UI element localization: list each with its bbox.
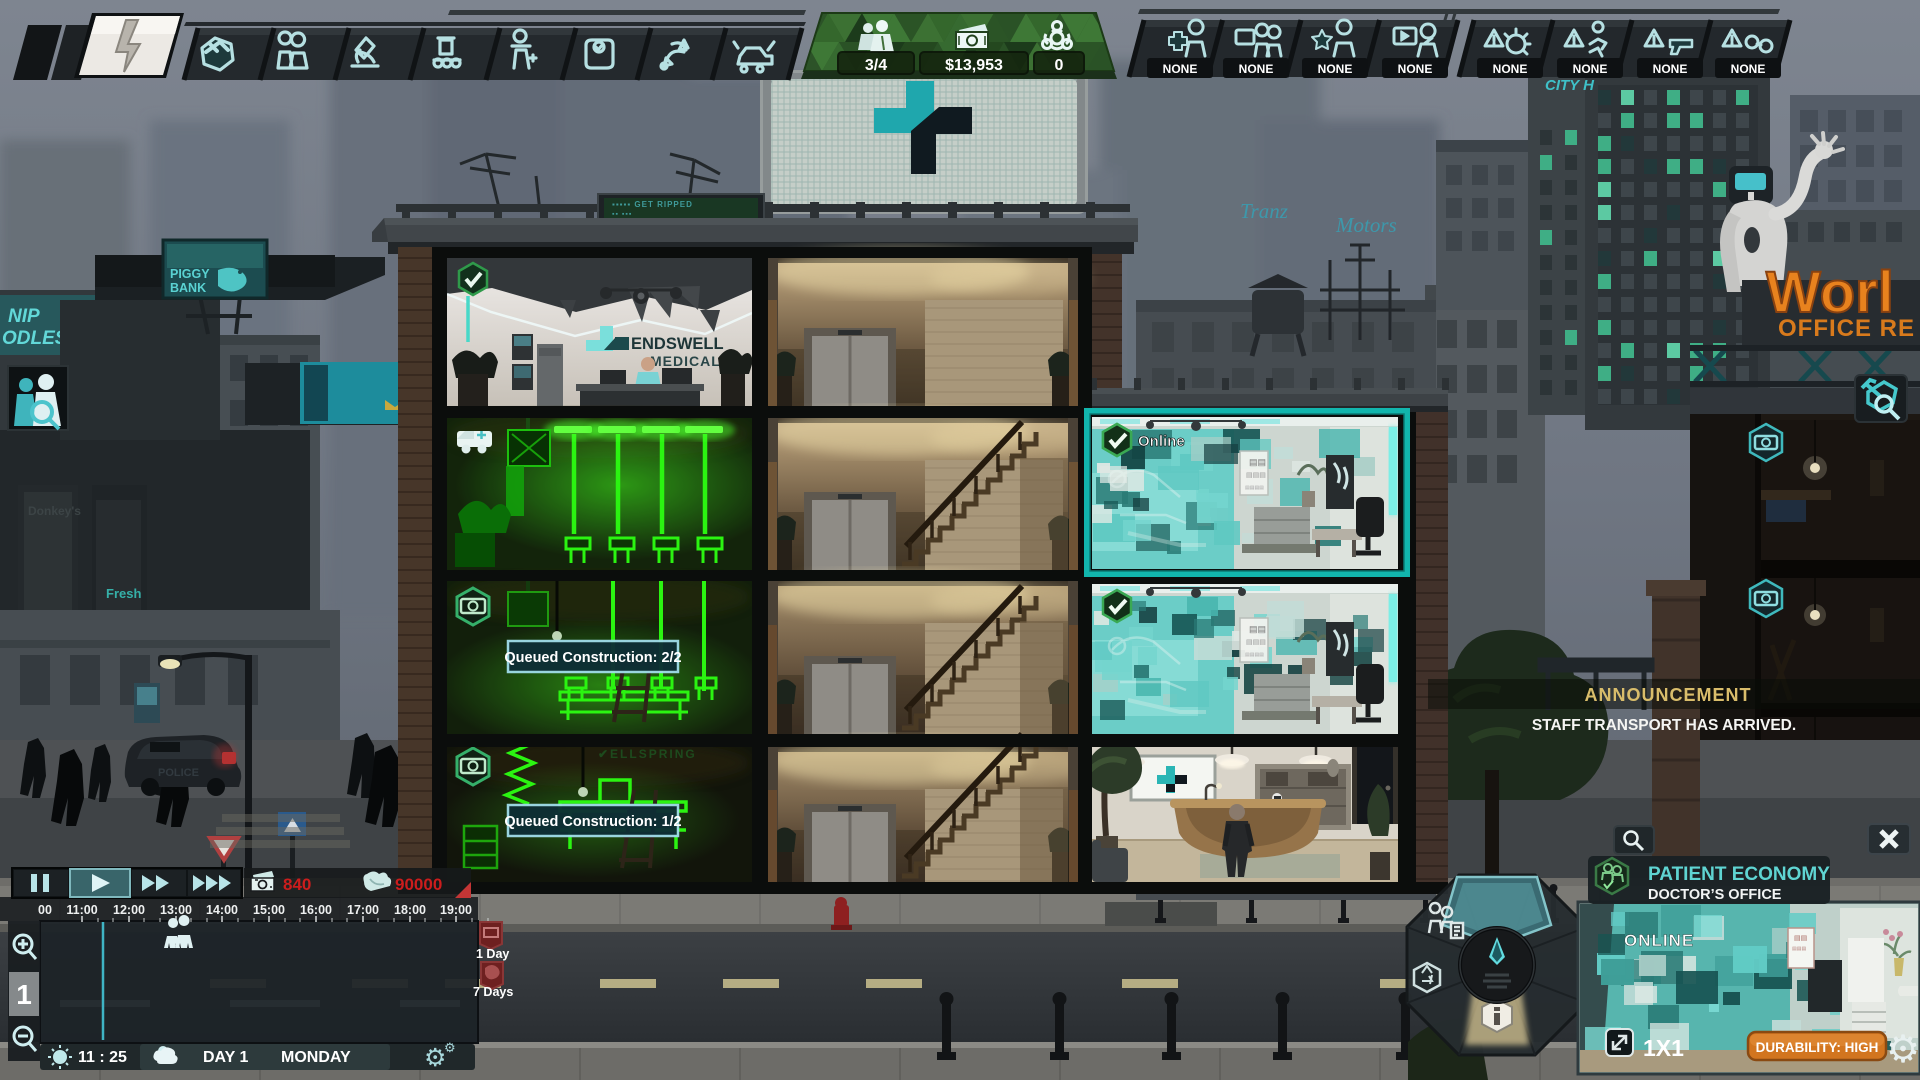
svg-text:Motors: Motors: [1335, 213, 1397, 237]
svg-text:NONE: NONE: [1493, 62, 1528, 76]
svg-text:NONE: NONE: [1163, 62, 1198, 76]
svg-text:12:00: 12:00: [113, 903, 145, 917]
svg-text:DURABILITY: HIGH: DURABILITY: HIGH: [1756, 1040, 1879, 1055]
svg-text:▤▤▤: ▤▤▤: [1246, 639, 1266, 646]
svg-text:NONE: NONE: [1653, 62, 1688, 76]
svg-text:11 : 25: 11 : 25: [78, 1049, 127, 1066]
svg-text:14:00: 14:00: [206, 903, 238, 917]
svg-text:15:00: 15:00: [253, 903, 285, 917]
svg-text:Donkey's: Donkey's: [28, 504, 81, 518]
svg-text:Tranz: Tranz: [1240, 199, 1288, 223]
svg-text:Fresh: Fresh: [106, 586, 141, 601]
svg-text:DAY 1: DAY 1: [203, 1049, 248, 1066]
svg-text:ODLES: ODLES: [2, 328, 68, 349]
svg-text:POLICE: POLICE: [158, 767, 199, 779]
svg-text:NIP: NIP: [8, 306, 40, 327]
svg-text:1: 1: [16, 979, 32, 1010]
svg-text:1X1: 1X1: [1643, 1035, 1684, 1061]
svg-text:1 Day: 1 Day: [476, 947, 509, 961]
svg-text:Online: Online: [1138, 433, 1185, 450]
svg-text:ONLINE: ONLINE: [1624, 931, 1694, 950]
svg-text:▪▪▪▪▪ GET RIPPED: ▪▪▪▪▪ GET RIPPED: [612, 200, 693, 209]
svg-text:✔ELLSPRING: ✔ELLSPRING: [598, 747, 697, 761]
svg-text:13:00: 13:00: [160, 903, 192, 917]
svg-text:NONE: NONE: [1573, 62, 1608, 76]
svg-text:▤▤▤▤: ▤▤▤▤: [1245, 485, 1264, 491]
svg-text:11:00: 11:00: [66, 903, 97, 917]
svg-text:MEDICAL: MEDICAL: [650, 353, 721, 369]
svg-text:NONE: NONE: [1731, 62, 1766, 76]
svg-text:17:00: 17:00: [347, 903, 379, 917]
svg-text:00: 00: [38, 903, 52, 917]
svg-text:STAFF TRANSPORT HAS ARRIVED.: STAFF TRANSPORT HAS ARRIVED.: [1532, 717, 1796, 734]
svg-text:19:00: 19:00: [440, 903, 472, 917]
svg-text:▤▤▤: ▤▤▤: [1246, 472, 1266, 479]
svg-text:18:00: 18:00: [394, 903, 426, 917]
svg-text:DOCTOR’S OFFICE: DOCTOR’S OFFICE: [1648, 887, 1782, 903]
svg-text:PIGGY: PIGGY: [170, 267, 210, 281]
svg-text:OFFICE RE: OFFICE RE: [1778, 315, 1915, 342]
svg-text:⚙: ⚙: [1886, 1029, 1920, 1071]
svg-text:▤▤▤▤: ▤▤▤▤: [1245, 652, 1264, 658]
svg-text:ANNOUNCEMENT: ANNOUNCEMENT: [1585, 685, 1752, 705]
svg-text:840: 840: [283, 875, 311, 894]
svg-text:▪▪ ▪▪▪: ▪▪ ▪▪▪: [612, 211, 632, 218]
svg-text:▤▤▤: ▤▤▤: [1792, 946, 1806, 952]
svg-text:▤▤: ▤▤: [1249, 624, 1266, 634]
svg-text:Queued Construction: 1/2: Queued Construction: 1/2: [504, 814, 681, 830]
svg-text:▤▤: ▤▤: [1794, 935, 1807, 942]
svg-text:NONE: NONE: [1318, 62, 1353, 76]
svg-text:CITY H: CITY H: [1545, 77, 1595, 94]
svg-text:ENDSWELL: ENDSWELL: [631, 335, 724, 353]
svg-text:3/4: 3/4: [865, 57, 887, 74]
svg-text:Queued Construction: 2/2: Queued Construction: 2/2: [504, 650, 681, 666]
svg-text:PATIENT ECONOMY: PATIENT ECONOMY: [1648, 864, 1830, 885]
svg-text:▤▤: ▤▤: [1249, 457, 1266, 467]
svg-text:NONE: NONE: [1239, 62, 1274, 76]
svg-text:⚙: ⚙: [444, 1040, 456, 1055]
svg-text:BANK: BANK: [170, 281, 206, 295]
svg-text:MONDAY: MONDAY: [281, 1049, 351, 1066]
svg-text:16:00: 16:00: [300, 903, 332, 917]
svg-text:NONE: NONE: [1398, 62, 1433, 76]
svg-text:7 Days: 7 Days: [473, 985, 513, 999]
svg-text:90000: 90000: [395, 875, 442, 894]
svg-text:$13,953: $13,953: [945, 57, 1003, 74]
svg-text:0: 0: [1055, 57, 1064, 74]
